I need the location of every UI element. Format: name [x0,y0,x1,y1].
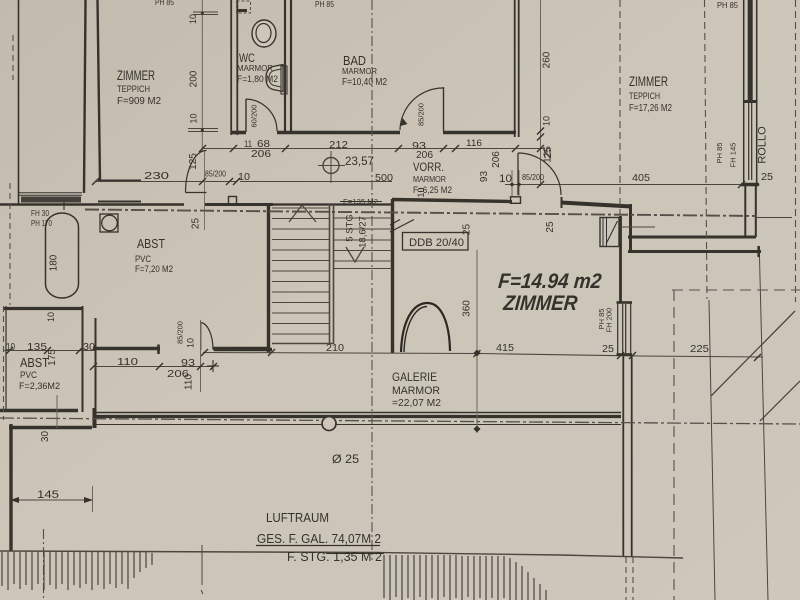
svg-text:MARMOR: MARMOR [237,63,273,73]
svg-text:LUFTRAUM: LUFTRAUM [266,510,329,525]
svg-text:225: 225 [690,343,709,355]
svg-text:MARMOR: MARMOR [392,385,440,397]
svg-text:ABST: ABST [137,237,165,251]
svg-text:110: 110 [184,374,195,390]
svg-text:10: 10 [416,187,426,197]
svg-text:405: 405 [632,172,650,184]
svg-text:25: 25 [761,172,773,183]
svg-text:FH 200: FH 200 [605,308,614,333]
svg-text:F=14.94 m2: F=14.94 m2 [497,270,602,293]
svg-text:10: 10 [499,173,512,185]
svg-text:=22,07 M2: =22,07 M2 [392,397,441,409]
svg-text:85/200: 85/200 [176,321,185,344]
svg-text:TEPPICH: TEPPICH [117,84,150,95]
svg-text:PH 85: PH 85 [715,143,724,164]
svg-text:PH 170: PH 170 [31,219,52,228]
svg-text:180: 180 [49,254,60,271]
svg-text:360: 360 [462,300,473,317]
svg-text:25: 25 [545,221,556,233]
svg-text:ZIMMER: ZIMMER [502,292,580,315]
svg-text:85/200: 85/200 [522,173,544,182]
svg-text:F=1,80 M2: F=1,80 M2 [237,74,278,85]
svg-text:145: 145 [37,489,59,501]
svg-text:PH 85: PH 85 [155,0,174,7]
svg-text:210: 210 [326,343,344,354]
svg-text:260: 260 [542,51,553,68]
svg-text:175: 175 [47,349,58,366]
svg-text:25: 25 [462,224,473,236]
svg-text:ROLLO: ROLLO [757,126,769,164]
svg-text:125: 125 [188,153,199,170]
svg-text:25: 25 [602,344,614,355]
svg-text:PH 85: PH 85 [717,0,738,10]
svg-text:110: 110 [117,357,139,368]
svg-text:ABST: ABST [20,356,49,370]
svg-text:230: 230 [144,170,169,182]
svg-text:206: 206 [491,151,502,168]
svg-text:TEPPICH: TEPPICH [629,91,660,102]
svg-text:206: 206 [416,150,433,161]
svg-text:10: 10 [188,14,198,24]
svg-text:DDB 20/40: DDB 20/40 [409,237,464,249]
svg-text:FH 145: FH 145 [729,143,738,168]
svg-text:85/200: 85/200 [205,170,226,179]
svg-text:200: 200 [189,70,200,87]
svg-text:93: 93 [479,171,490,183]
svg-text:116: 116 [466,138,482,149]
svg-text:GALERIE: GALERIE [392,372,437,384]
svg-text:23,57: 23,57 [345,156,374,168]
svg-text:212: 212 [329,140,348,151]
svg-text:500: 500 [375,172,393,184]
svg-text:F=10,40 M2: F=10,40 M2 [342,77,387,88]
svg-text:125: 125 [543,146,554,163]
svg-text:10: 10 [542,116,552,126]
svg-text:PVC: PVC [20,370,37,381]
svg-text:415: 415 [496,343,514,354]
svg-text:10: 10 [6,342,15,353]
svg-text:10: 10 [46,312,56,322]
svg-text:MARMOR: MARMOR [413,174,446,184]
svg-text:30: 30 [83,342,95,353]
svg-text:Ø 25: Ø 25 [332,452,359,466]
svg-text:18,6/27: 18,6/27 [358,216,369,248]
svg-text:F. STG. 1,35 M 2: F. STG. 1,35 M 2 [287,550,382,564]
svg-text:25: 25 [191,218,202,230]
svg-text:MARMOR: MARMOR [342,66,377,76]
svg-text:5 STG: 5 STG [345,214,356,241]
svg-text:10: 10 [186,338,196,348]
svg-text:F=2,36M2: F=2,36M2 [19,381,60,392]
svg-text:F=7,20 M2: F=7,20 M2 [135,264,173,275]
svg-text:F=909 M2: F=909 M2 [117,96,161,107]
svg-text:135: 135 [27,342,48,353]
svg-text:GES. F. GAL. 74,07M 2: GES. F. GAL. 74,07M 2 [257,532,381,546]
svg-text:206: 206 [251,149,272,160]
svg-text:VORR.: VORR. [413,160,444,174]
svg-text:11: 11 [244,139,252,149]
svg-text:FH 30: FH 30 [31,209,49,218]
svg-text:10: 10 [238,172,250,183]
svg-text:30: 30 [40,431,51,443]
svg-text:85/200: 85/200 [417,103,426,126]
svg-text:F=17,26 M2: F=17,26 M2 [629,103,672,114]
svg-text:PH 85: PH 85 [315,0,334,9]
svg-text:60/200: 60/200 [250,105,259,128]
svg-text:ZIMMER: ZIMMER [117,67,155,83]
svg-text:ZIMMER: ZIMMER [629,73,668,89]
svg-text:10: 10 [189,113,199,123]
